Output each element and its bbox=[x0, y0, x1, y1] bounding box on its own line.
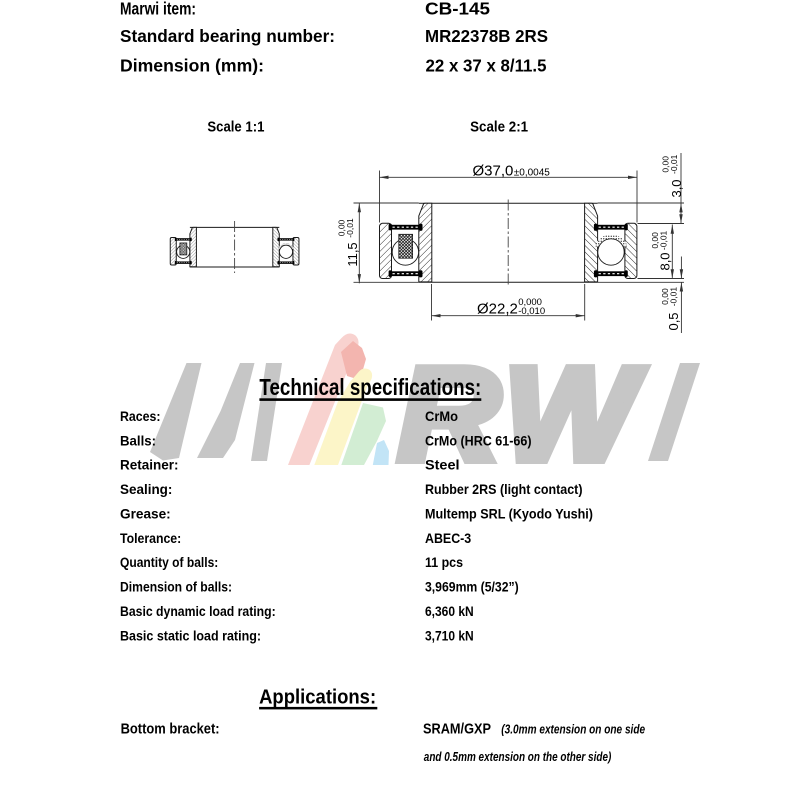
svg-text:Rubber 2RS (light contact): Rubber 2RS (light contact) bbox=[425, 482, 583, 497]
svg-text:3,969mm (5/32”): 3,969mm (5/32”) bbox=[425, 580, 519, 595]
svg-text:Sealing:: Sealing: bbox=[120, 482, 172, 497]
svg-text:-0,01: -0,01 bbox=[669, 287, 679, 307]
svg-text:Grease:: Grease: bbox=[120, 506, 171, 521]
svg-text:Marwi item:: Marwi item: bbox=[120, 0, 196, 18]
svg-text:Tolerance:: Tolerance: bbox=[120, 531, 181, 546]
svg-text:(3.0mm extension on one side: (3.0mm extension on one side bbox=[501, 722, 645, 736]
svg-text:Standard bearing number:: Standard bearing number: bbox=[120, 26, 335, 46]
svg-text:11,5: 11,5 bbox=[345, 242, 360, 266]
svg-text:Scale 1:1: Scale 1:1 bbox=[207, 119, 264, 135]
svg-text:Multemp SRL (Kyodo Yushi): Multemp SRL (Kyodo Yushi) bbox=[425, 506, 593, 521]
svg-text:3,0: 3,0 bbox=[669, 179, 684, 197]
svg-text:Basic static load rating:: Basic static load rating: bbox=[120, 628, 261, 643]
svg-text:Dimension (mm):: Dimension (mm): bbox=[120, 56, 264, 76]
svg-text:-0,01: -0,01 bbox=[669, 154, 679, 174]
svg-text:3,710 kN: 3,710 kN bbox=[425, 628, 474, 643]
svg-text:CB-145: CB-145 bbox=[425, 0, 490, 18]
svg-text:Steel: Steel bbox=[425, 458, 460, 473]
svg-text:Ø22,2: Ø22,2 bbox=[477, 301, 518, 318]
svg-text:-0,010: -0,010 bbox=[518, 306, 545, 317]
svg-text:Scale 2:1: Scale 2:1 bbox=[470, 119, 528, 135]
svg-text:Balls:: Balls: bbox=[120, 433, 156, 448]
svg-text:CrMo (HRC 61-66): CrMo (HRC 61-66) bbox=[425, 433, 532, 448]
svg-text:Ø37,0: Ø37,0 bbox=[473, 163, 514, 180]
svg-text:Applications:: Applications: bbox=[259, 687, 376, 709]
svg-text:Technical specifications:: Technical specifications: bbox=[259, 374, 481, 400]
svg-text:11 pcs: 11 pcs bbox=[425, 555, 463, 570]
svg-text:6,360 kN: 6,360 kN bbox=[425, 604, 474, 619]
svg-text:MR22378B 2RS: MR22378B 2RS bbox=[425, 26, 548, 46]
svg-text:ABEC-3: ABEC-3 bbox=[425, 531, 472, 546]
svg-text:Basic dynamic load rating:: Basic dynamic load rating: bbox=[120, 604, 276, 619]
svg-text:0,5: 0,5 bbox=[666, 312, 681, 330]
svg-text:SRAM/GXP: SRAM/GXP bbox=[423, 720, 491, 737]
svg-text:and 0.5mm extension on the oth: and 0.5mm extension on the other side) bbox=[424, 750, 612, 764]
svg-text:CrMo: CrMo bbox=[425, 409, 458, 424]
svg-text:Dimension of balls:: Dimension of balls: bbox=[120, 580, 232, 595]
svg-text:Quantity of balls:: Quantity of balls: bbox=[120, 555, 218, 570]
svg-text:Races:: Races: bbox=[120, 409, 161, 424]
svg-text:-0,01: -0,01 bbox=[345, 218, 355, 238]
svg-text:W: W bbox=[504, 340, 645, 488]
svg-text:8,0: 8,0 bbox=[658, 252, 673, 270]
svg-text:Bottom bracket:: Bottom bracket: bbox=[121, 721, 220, 737]
svg-text:22 x 37 x 8/11.5: 22 x 37 x 8/11.5 bbox=[426, 56, 547, 76]
svg-text:-0,01: -0,01 bbox=[659, 230, 669, 250]
svg-text:±0,0045: ±0,0045 bbox=[514, 168, 551, 179]
svg-text:Retainer:: Retainer: bbox=[120, 458, 179, 473]
